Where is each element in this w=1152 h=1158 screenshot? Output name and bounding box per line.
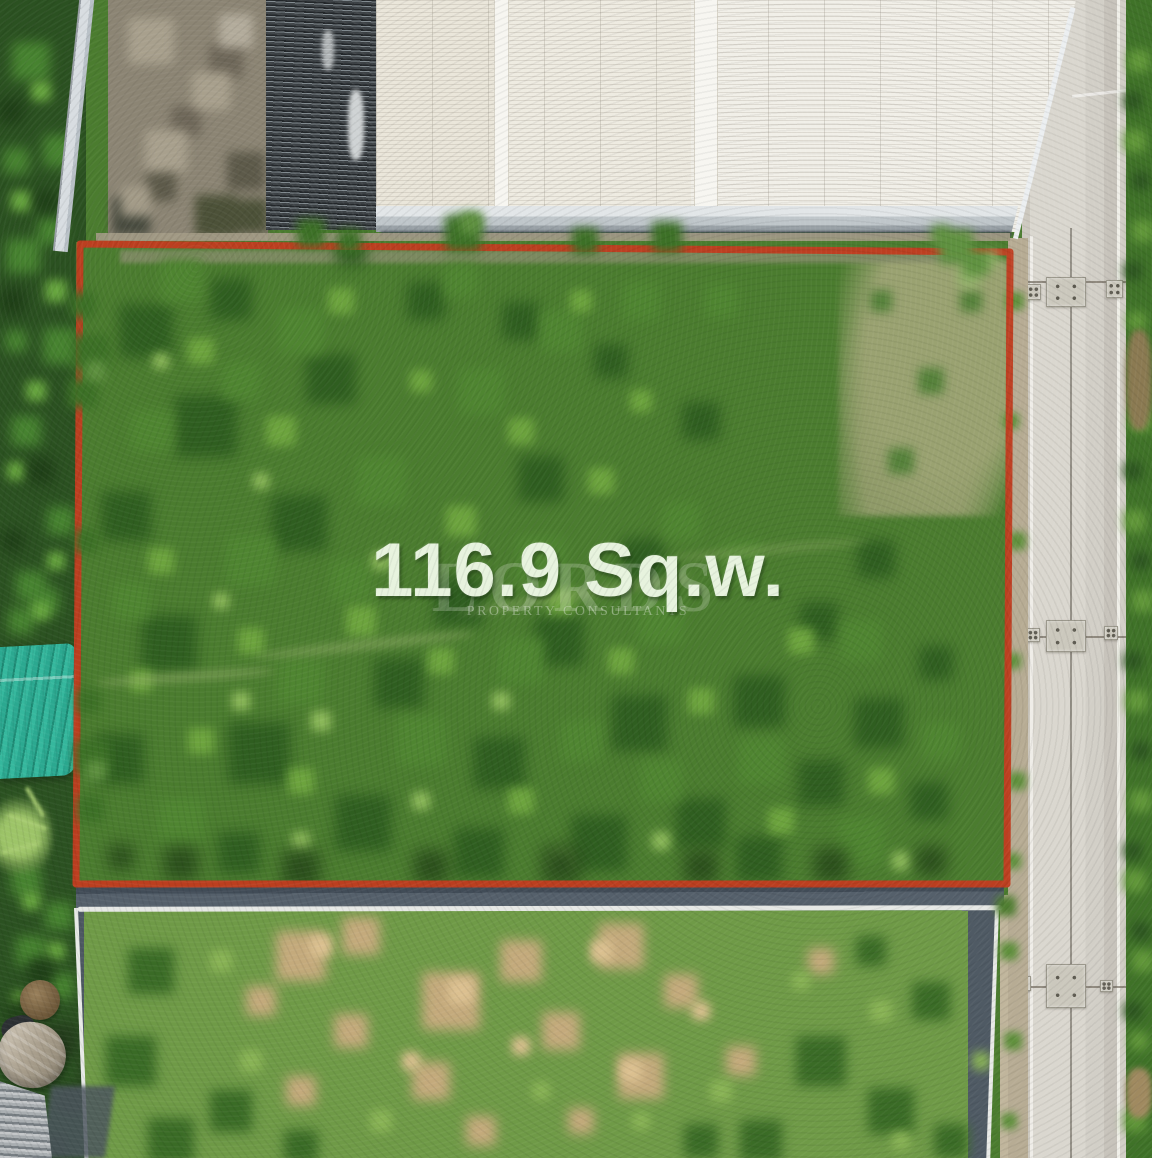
aerial-photo: LORDS PROPERTY CONSULTANTS 116.9 Sq.w. <box>0 0 1152 1158</box>
area-size-label: 116.9 Sq.w. <box>178 527 978 614</box>
